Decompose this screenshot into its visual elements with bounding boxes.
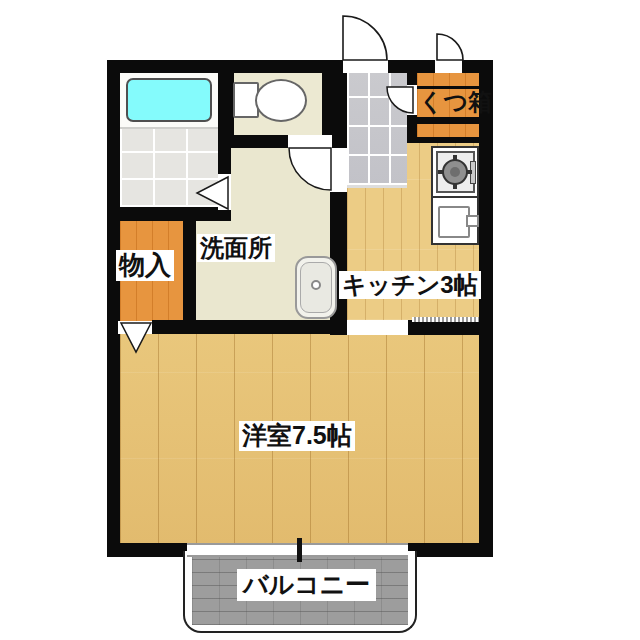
storage-label: 物入 xyxy=(116,250,174,281)
floor-plan: 洗面所 物入 キッチン3帖 洋室7.5帖 バルコニー くつ箱 xyxy=(0,0,640,640)
kitchen-label: キッチン3帖 xyxy=(339,271,481,299)
western-room-label: 洋室7.5帖 xyxy=(239,421,355,451)
washroom-label: 洗面所 xyxy=(197,234,275,262)
secondary-door-arc xyxy=(437,34,463,60)
window-center-tick xyxy=(297,538,302,562)
bathroom-folding-door xyxy=(197,177,228,209)
stove-burner xyxy=(438,155,472,189)
storage-folding-door xyxy=(121,323,151,352)
shoe-cabinet-door-arc xyxy=(387,87,413,113)
shoe-cabinet-label: くつ箱 xyxy=(419,89,492,115)
toilet-door-arc xyxy=(289,148,331,190)
balcony-label: バルコニー xyxy=(237,569,376,601)
entrance-door-arc xyxy=(343,16,387,60)
door-symbols-overlay xyxy=(0,0,640,640)
